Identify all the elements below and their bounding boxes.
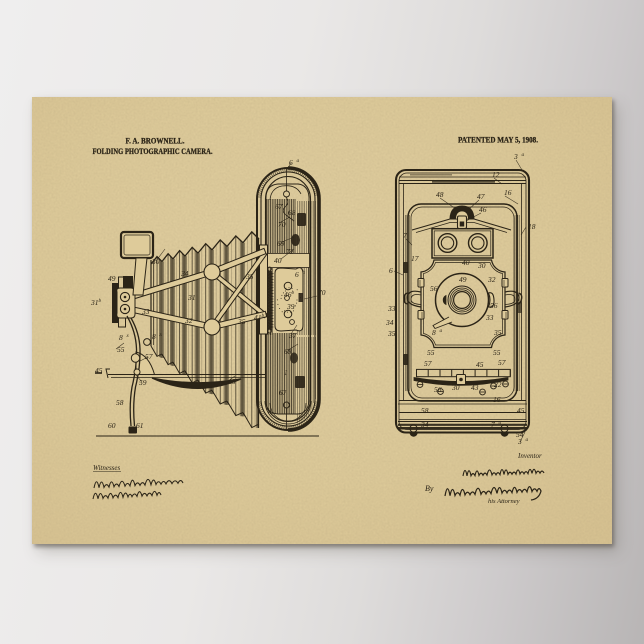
svg-text:56: 56 (430, 284, 438, 293)
svg-text:49: 49 (108, 274, 116, 283)
svg-text:22: 22 (494, 380, 502, 389)
svg-text:1: 1 (284, 368, 288, 377)
svg-text:31: 31 (187, 293, 196, 302)
svg-text:33: 33 (387, 304, 396, 313)
svg-text:32: 32 (184, 316, 193, 325)
svg-text:47: 47 (477, 192, 485, 201)
svg-text:56: 56 (434, 385, 442, 394)
svg-text:40: 40 (462, 258, 470, 267)
svg-text:70: 70 (318, 288, 326, 297)
svg-text:58: 58 (116, 398, 124, 407)
svg-text:a: a (499, 420, 502, 426)
svg-text:35: 35 (237, 317, 246, 326)
svg-text:6: 6 (295, 270, 299, 279)
svg-text:a: a (440, 328, 443, 334)
svg-text:34: 34 (180, 269, 189, 278)
svg-text:57: 57 (498, 358, 506, 367)
svg-text:69: 69 (277, 239, 285, 248)
svg-text:F. A. BROWNELL.: F. A. BROWNELL. (126, 137, 185, 146)
svg-text:31: 31 (90, 298, 99, 307)
svg-text:45: 45 (517, 406, 525, 415)
svg-text:55: 55 (493, 348, 501, 357)
svg-text:55: 55 (427, 348, 435, 357)
svg-text:41: 41 (254, 313, 262, 322)
svg-text:68: 68 (288, 208, 296, 217)
svg-text:35: 35 (245, 272, 254, 281)
svg-text:30: 30 (151, 257, 160, 266)
svg-text:Inventor: Inventor (517, 452, 542, 460)
svg-text:33: 33 (485, 313, 494, 322)
svg-text:8: 8 (152, 332, 156, 341)
svg-text:a: a (526, 437, 529, 443)
svg-text:40: 40 (274, 256, 282, 265)
svg-text:16: 16 (493, 395, 501, 404)
svg-text:7: 7 (403, 231, 407, 240)
svg-text:48: 48 (436, 190, 444, 199)
svg-text:3: 3 (513, 152, 518, 161)
svg-text:b: b (99, 298, 102, 304)
svg-text:his Attorney: his Attorney (488, 498, 520, 505)
svg-text:12: 12 (492, 170, 500, 179)
svg-text:8: 8 (119, 333, 123, 342)
svg-text:61: 61 (136, 421, 144, 430)
svg-text:33: 33 (141, 307, 150, 316)
svg-text:34: 34 (385, 318, 394, 327)
svg-text:30: 30 (477, 261, 486, 270)
svg-text:60: 60 (108, 421, 116, 430)
svg-text:58: 58 (421, 406, 429, 415)
svg-text:8: 8 (432, 328, 436, 337)
svg-text:16: 16 (504, 188, 512, 197)
svg-text:67: 67 (275, 202, 283, 211)
svg-text:57: 57 (424, 359, 432, 368)
svg-text:45: 45 (95, 366, 103, 375)
svg-text:57: 57 (145, 352, 153, 361)
svg-text:6: 6 (389, 266, 393, 275)
svg-text:b: b (262, 313, 265, 319)
svg-text:30: 30 (451, 383, 460, 392)
svg-text:46: 46 (479, 205, 487, 214)
svg-text:35: 35 (493, 328, 502, 337)
svg-text:43: 43 (471, 383, 479, 392)
svg-text:55: 55 (117, 345, 125, 354)
svg-text:35: 35 (387, 329, 396, 338)
svg-text:Witnesses: Witnesses (93, 464, 120, 472)
svg-text:54: 54 (516, 430, 524, 439)
svg-text:b: b (303, 270, 306, 276)
svg-text:b: b (292, 290, 295, 296)
svg-text:FOLDING PHOTOGRAPHIC CAMERA.: FOLDING PHOTOGRAPHIC CAMERA. (93, 147, 213, 156)
svg-text:39: 39 (286, 302, 295, 311)
svg-text:49: 49 (459, 275, 467, 284)
svg-text:PATENTED MAY 5, 1908.: PATENTED MAY 5, 1908. (458, 136, 538, 145)
svg-text:45: 45 (476, 360, 484, 369)
svg-text:56: 56 (490, 301, 498, 310)
svg-text:34: 34 (420, 420, 429, 429)
svg-text:7: 7 (491, 420, 495, 429)
svg-text:72: 72 (286, 247, 294, 256)
svg-text:50: 50 (198, 382, 206, 391)
svg-text:18: 18 (528, 222, 536, 231)
svg-text:67: 67 (279, 388, 287, 397)
svg-text:17: 17 (411, 254, 419, 263)
svg-text:By: By (425, 484, 434, 493)
svg-text:59: 59 (139, 378, 147, 387)
svg-text:a: a (522, 152, 525, 158)
svg-text:32: 32 (487, 275, 496, 284)
svg-text:a: a (297, 158, 300, 164)
